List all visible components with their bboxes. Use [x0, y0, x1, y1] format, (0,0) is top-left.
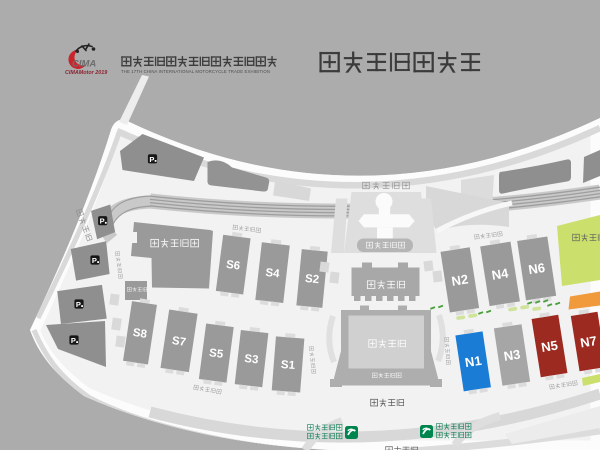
svg-text:CIMA: CIMA	[72, 59, 96, 70]
svg-text:P: P	[71, 336, 76, 345]
svg-text:N6: N6	[527, 260, 546, 277]
svg-text:P: P	[149, 155, 154, 164]
svg-text:P: P	[92, 256, 97, 265]
svg-text:N7: N7	[579, 333, 598, 350]
svg-text:CIMAMotor 2019: CIMAMotor 2019	[65, 70, 107, 76]
svg-text:S7: S7	[171, 335, 187, 349]
svg-text:N1: N1	[464, 353, 483, 370]
svg-text:S3: S3	[244, 353, 259, 367]
svg-text:S8: S8	[132, 327, 148, 341]
svg-text:N4: N4	[491, 265, 511, 283]
svg-text:N3: N3	[503, 347, 522, 364]
svg-text:N5: N5	[540, 337, 559, 354]
svg-text:S4: S4	[265, 267, 281, 281]
svg-text:S5: S5	[208, 347, 224, 361]
svg-text:S1: S1	[280, 359, 296, 372]
svg-text:S2: S2	[304, 273, 319, 286]
svg-text:N2: N2	[450, 271, 469, 288]
svg-text:P: P	[100, 217, 105, 226]
svg-text:S6: S6	[225, 259, 241, 273]
svg-text:P: P	[76, 300, 81, 309]
svg-text:THE 17TH CHINA INTERNATIONAL M: THE 17TH CHINA INTERNATIONAL MOTORCYCLE …	[121, 69, 270, 74]
